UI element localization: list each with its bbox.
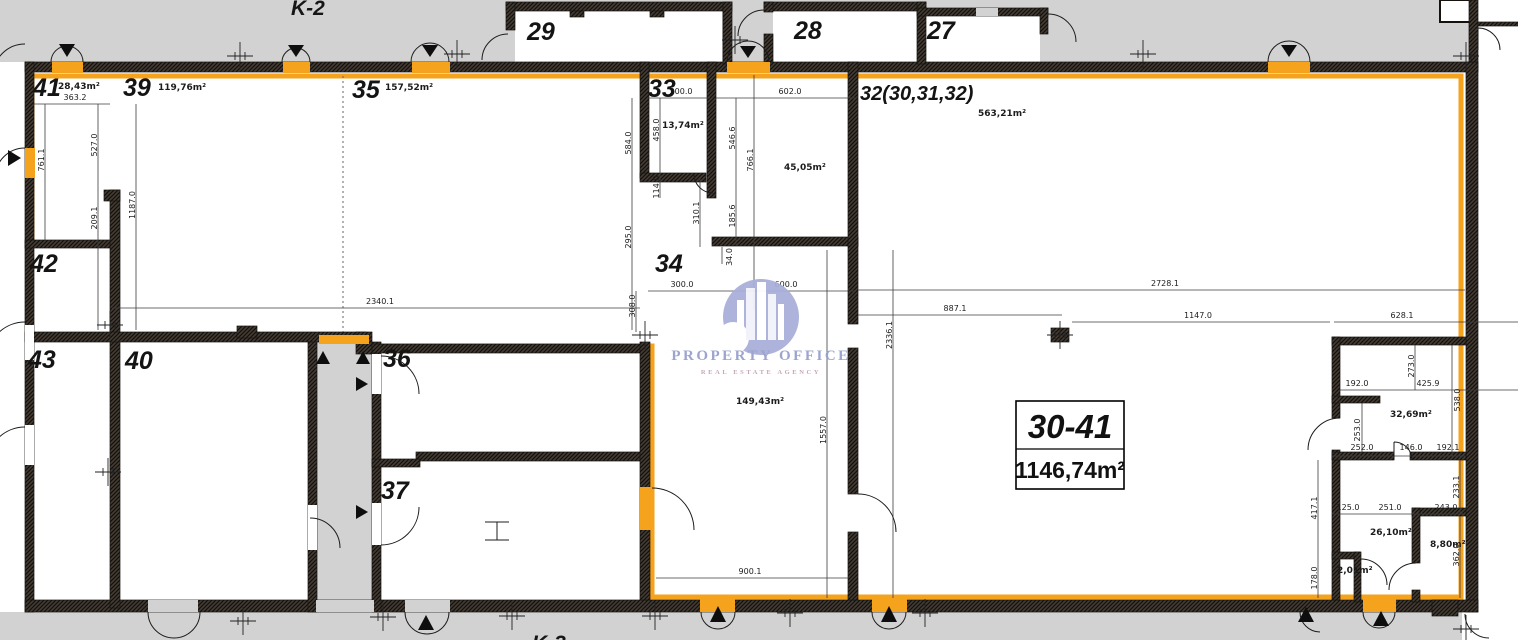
- dim-label: 766.1: [746, 149, 755, 172]
- dim-label: 1147.0: [1184, 311, 1212, 320]
- room-35-area: 157,52m²: [385, 83, 433, 93]
- room-29-number: 29: [526, 18, 555, 46]
- dim-label: 251.0: [1379, 503, 1402, 512]
- room-41-area: 28,43m²: [58, 82, 100, 92]
- room-39-number: 39: [123, 74, 151, 102]
- zone-label-top: K-2: [291, 0, 325, 20]
- dim-label: 2340.1: [366, 297, 394, 306]
- room-37-number: 37: [381, 477, 410, 505]
- room-42-number: 42: [29, 250, 58, 278]
- dim-label: 628.1: [1391, 311, 1414, 320]
- room-c-area: 8,80m²: [1430, 540, 1466, 550]
- dim-label: 1557.0: [819, 416, 828, 444]
- dim-label: 243.0: [1435, 503, 1458, 512]
- dim-label: 2336.1: [885, 321, 894, 349]
- room-b-area: 26,10m²: [1370, 528, 1412, 538]
- dim-label: 192.0: [1346, 379, 1369, 388]
- unit-total-area: 1146,74m²: [1015, 457, 1125, 483]
- room-27-number: 27: [926, 17, 956, 45]
- unit-range-label: 30-41: [1028, 408, 1112, 445]
- dim-label: 417.1: [1310, 497, 1319, 520]
- dim-label: 178.0: [1310, 567, 1319, 590]
- dim-label: 310.1: [692, 202, 701, 225]
- dim-label: 209.1: [90, 207, 99, 230]
- room-34-area: 149,43m²: [736, 397, 784, 407]
- dim-label: 546.6: [728, 127, 737, 150]
- logo-name: PROPERTY OFFICE: [671, 348, 850, 364]
- dim-label: 273.0: [1407, 355, 1416, 378]
- dim-label: 125.0: [1337, 503, 1360, 512]
- dim-label: 308.0: [628, 295, 637, 318]
- room-32-area: 563,21m²: [978, 109, 1026, 119]
- dim-label: 602.0: [779, 87, 802, 96]
- logo-tagline: REAL ESTATE AGENCY: [701, 369, 821, 376]
- room-a-area: 32,69m²: [1390, 410, 1432, 420]
- dim-label: 538.0: [1453, 389, 1462, 412]
- room-40-number: 40: [124, 347, 153, 375]
- room-39-area: 119,76m²: [158, 83, 206, 93]
- dim-label: 363.2: [64, 93, 87, 102]
- dim-label: 761.1: [37, 149, 46, 172]
- dim-label: 887.1: [944, 304, 967, 313]
- dim-label: 185.6: [728, 205, 737, 228]
- room-33-number: 33: [648, 75, 676, 103]
- room-36-number: 36: [383, 345, 412, 373]
- dim-label: 425.9: [1417, 379, 1440, 388]
- room-28-number: 28: [793, 17, 822, 45]
- dim-label: 252.0: [1351, 443, 1374, 452]
- dim-label: 527.0: [90, 134, 99, 157]
- unit-summary-box: 30-41 1146,74m²: [1015, 401, 1125, 489]
- dim-label: 295.0: [624, 226, 633, 249]
- floor-plan: 363.2 527.0 761.1 1187.0 209.1 2340.1 30…: [0, 0, 1518, 640]
- room-34-number: 34: [655, 250, 683, 278]
- room-33-area: 13,74m²: [662, 121, 704, 131]
- dim-label: 233.1: [1452, 476, 1461, 499]
- room-35-number: 35: [352, 76, 381, 104]
- dim-label: 300.0: [671, 280, 694, 289]
- dim-label: 34.0: [725, 248, 734, 266]
- zone-label-bottom: K-3: [532, 632, 566, 640]
- room-31-area: 45,05m²: [784, 163, 826, 173]
- dim-label: 114.0: [652, 176, 661, 199]
- floor-plan-page: 363.2 527.0 761.1 1187.0 209.1 2340.1 30…: [0, 0, 1518, 640]
- room-32-number: 32(30,31,32): [860, 83, 974, 105]
- dim-label: 253.0: [1353, 419, 1362, 442]
- dim-label: 1187.0: [128, 191, 137, 219]
- dim-label: 458.0: [652, 119, 661, 142]
- dim-label: 2728.1: [1151, 279, 1179, 288]
- dim-label: 900.1: [739, 567, 762, 576]
- room-d-area: 2,01m²: [1337, 566, 1373, 576]
- room-43-number: 43: [27, 346, 56, 374]
- dim-label: 192.1: [1437, 443, 1460, 452]
- room-41-number: 41: [32, 74, 61, 102]
- dim-label: 584.0: [624, 132, 633, 155]
